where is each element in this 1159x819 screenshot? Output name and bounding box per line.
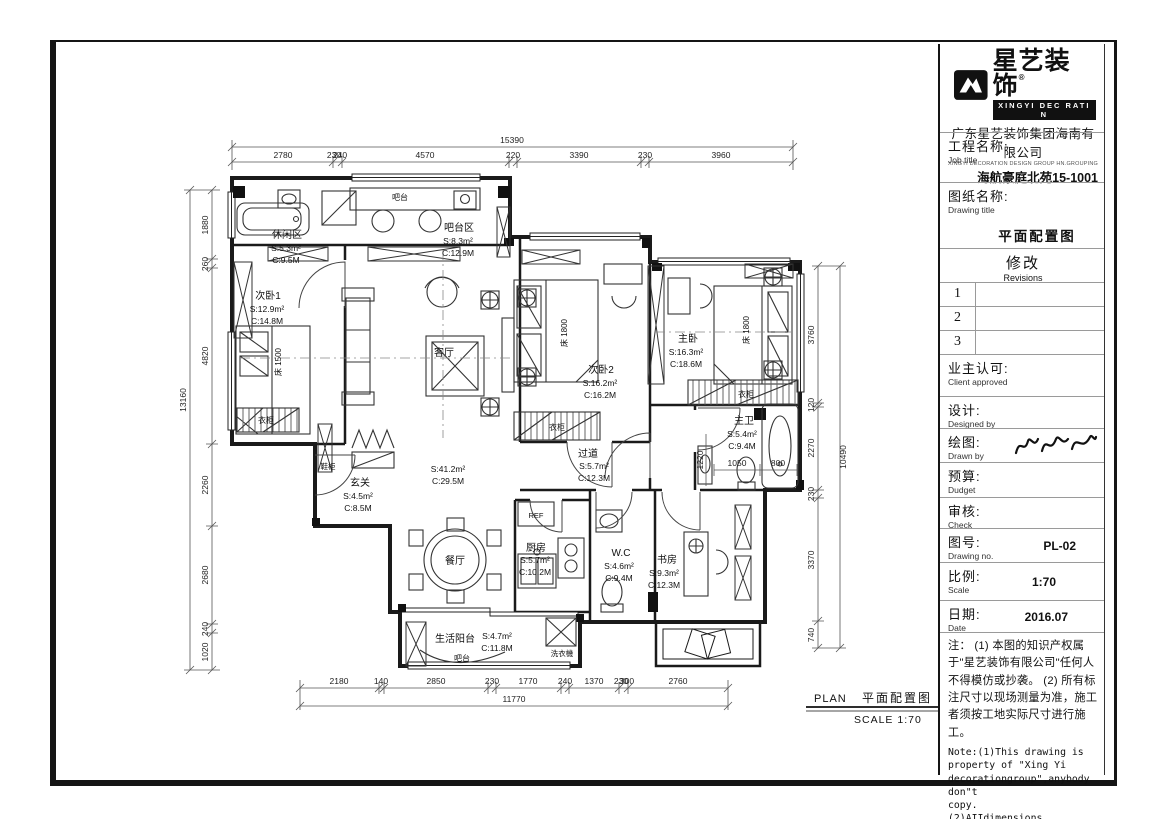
logo-subtitle: XINGYI DEC RATI N (993, 100, 1096, 120)
shoe-cabinet-label: 鞋柜 (321, 461, 336, 471)
notes-section: 注： (1) 本图的知识产权属于"星艺装饰有限公司"任何人不得模仿或抄袭。 (2… (940, 632, 1104, 773)
job-title-section: 工程名称: Job title 海航豪庭北苑15-1001 (940, 132, 1104, 182)
dim-bottom-3: 230 (485, 676, 499, 686)
room-balcony-perimeter: C:11.8M (481, 643, 513, 653)
drawing-sheet: { "title_block": { "brand": { "logo_text… (0, 0, 1159, 819)
room-study-perimeter: C:12.3M (648, 580, 680, 590)
washing-machine (546, 618, 576, 646)
dim-top-0: 2780 (274, 150, 293, 160)
bed2-size-label: 床 1800 (559, 318, 569, 347)
designed-label-cn: 设计: (948, 400, 1098, 419)
date-value: 2016.07 (1025, 610, 1068, 624)
dim-top-3: 220 (506, 150, 520, 160)
drawing-title-section: 图纸名称: Drawing title 平面配置图 (940, 182, 1104, 248)
wardrobe2-label: 衣柜 (549, 422, 565, 432)
room-kitchen-area: S:5.7m² (520, 555, 550, 565)
dim-bath-w2: 800 (771, 458, 785, 468)
desk-master (668, 278, 712, 314)
drawing-no-section: 图号: Drawing no. PL-02 (940, 528, 1104, 562)
drawing-label-cn: 图纸名称: (948, 186, 1098, 205)
budget-label-cn: 预算: (948, 466, 1098, 485)
dim-bottom-1: 140 (374, 676, 388, 686)
desk-bed2 (604, 264, 642, 308)
bay-window (656, 622, 760, 666)
wc-toilet (601, 578, 623, 612)
room-master-bath: 主卫 (734, 415, 754, 427)
bed1-size-label: 床 1500 (273, 347, 283, 376)
shower (322, 191, 356, 225)
room-leisure-area: S:5.3m² (271, 243, 301, 253)
scale-label-en: Scale (948, 585, 1098, 595)
room-living: 客厅 (434, 346, 454, 359)
dim-bath-w1: 1050 (728, 458, 747, 468)
dim-bottom-4: 1770 (519, 676, 538, 686)
bar-top-label: 吧台 (392, 192, 408, 202)
room-bar-zone-perimeter: C:12.9M (442, 248, 474, 258)
room-master-bath-area: S:5.4m² (727, 429, 757, 439)
scale-label-cn: 比例: (948, 566, 1098, 585)
room-bed1-area: S:12.9m² (250, 304, 285, 314)
room-dining: 餐厅 (445, 554, 465, 567)
entry-mat (352, 430, 394, 468)
fridge-label: REF (529, 511, 544, 520)
note-chinese: 注： (1) 本图的知识产权属于"星艺装饰有限公司"任何人不得模仿或抄袭。 (2… (948, 638, 1098, 742)
drawing-no-value: PL-02 (1043, 539, 1076, 553)
master-bathtub (762, 404, 798, 488)
room-bed2-perimeter: C:16.2M (584, 390, 616, 400)
plan-scale: SCALE 1:70 (854, 714, 922, 726)
dim-left-0: 1880 (200, 215, 210, 234)
room-corridor-perimeter: C:12.3M (578, 473, 610, 483)
dim-left-2: 4820 (200, 346, 210, 365)
job-label-cn: 工程名称: (948, 136, 1098, 155)
scale-section: 比例: Scale 1:70 (940, 562, 1104, 600)
room-balcony: 生活阳台 (435, 632, 475, 645)
dim-left-5: 240 (200, 622, 210, 636)
room-entry: 玄关 (350, 476, 370, 489)
revisions-header: 修改 Revisions (940, 248, 1104, 282)
dim-left-1: 260 (200, 257, 210, 271)
dim-top-6: 3960 (712, 150, 731, 160)
room-bar-zone-area: S:8.3m² (443, 236, 473, 246)
dim-right-5: 740 (806, 628, 816, 642)
dim-top-2: 4570 (416, 150, 435, 160)
dim-top-1: 240 (333, 150, 347, 160)
client-label-cn: 业主认可: (948, 358, 1098, 377)
plan-label: PLAN (814, 693, 847, 705)
bar-counter (350, 188, 480, 210)
dim-left-3: 2260 (200, 475, 210, 494)
armchair (425, 277, 459, 307)
dim-right-0: 3760 (806, 325, 816, 344)
room-corridor-area: S:5.7m² (579, 461, 609, 471)
sofa (342, 288, 374, 405)
revisions-label-cn: 修改 (948, 252, 1098, 273)
designed-by-section: 设计: Designed by (940, 396, 1104, 428)
plan-footer-title: PLAN 平面配置图 SCALE 1:70 (806, 691, 946, 726)
room-entry-perimeter: C:8.5M (344, 503, 371, 513)
check-label-cn: 审核: (948, 501, 1098, 520)
dim-top-5: 230 (638, 150, 652, 160)
room-leisure: 休闲区 (272, 228, 302, 241)
registered-mark: ® (1019, 73, 1026, 82)
room-bed1-perimeter: C:14.8M (251, 316, 283, 326)
room-bar-zone: 吧台区 (444, 221, 474, 234)
bar-stool (419, 210, 441, 232)
room-wc-area: S:4.6m² (604, 561, 634, 571)
revision-row: 3 (940, 330, 1104, 354)
check-section: 审核: Check (940, 497, 1104, 528)
dim-right-4: 3370 (806, 550, 816, 569)
wardrobe1-label: 衣柜 (258, 415, 274, 425)
dim-bottom-6: 1370 (585, 676, 604, 686)
dim-bottom-0: 2180 (330, 676, 349, 686)
dim-left-overall: 13160 (178, 388, 188, 412)
master-bed (714, 286, 792, 384)
room-study: 书房 (657, 553, 677, 566)
room-bed2: 次卧2 (588, 363, 614, 376)
room-master: 主卧 (678, 332, 698, 345)
room-wc: W.C (612, 548, 631, 559)
dim-top-overall: 15390 (500, 135, 524, 145)
drawing-no-label-en: Drawing no. (948, 551, 1098, 561)
revision-number: 1 (940, 283, 976, 306)
room-corridor: 过道 (578, 447, 598, 460)
dim-bath-height: 1220 (695, 450, 705, 469)
dim-right-1: 120 (806, 398, 816, 412)
dim-right-3: 230 (806, 487, 816, 501)
plan-title-cn: 平面配置图 (862, 691, 932, 705)
room-master-area: S:16.3m² (669, 347, 704, 357)
room-bed1: 次卧1 (255, 289, 281, 302)
note-english: Note:(1)This drawing is property of "Xin… (948, 746, 1098, 819)
logo-text: 星艺装饰® (993, 49, 1096, 99)
title-block: 星艺装饰® XINGYI DEC RATI N 广东星艺装饰集团海南有限公司 X… (938, 44, 1105, 775)
room-leisure-perimeter: C:9.5M (272, 255, 299, 265)
bar-bottom-label: 吧台 (454, 653, 470, 663)
drawing-title-value: 平面配置图 (976, 225, 1098, 245)
budget-section: 预算: Dudget (940, 462, 1104, 497)
room-kitchen-perimeter: C:10.2M (519, 567, 551, 577)
drawn-by-signature (1012, 431, 1098, 461)
client-approved-section: 业主认可: Client approved (940, 354, 1104, 396)
xingyi-logo-icon (954, 69, 988, 101)
coffee-table (426, 336, 484, 396)
stove (558, 538, 584, 578)
date-section: 日期: Date 2016.07 (940, 600, 1104, 632)
room-study-area: S:9.3m² (649, 568, 679, 578)
master-bed-size-label: 床 1800 (741, 315, 751, 344)
room-living-area: S:41.2m² (431, 464, 466, 474)
revision-number: 3 (940, 331, 976, 354)
room-master-perimeter: C:18.6M (670, 359, 702, 369)
washbasin (278, 190, 300, 208)
brand-section: 星艺装饰® XINGYI DEC RATI N 广东星艺装饰集团海南有限公司 X… (940, 44, 1104, 132)
room-living-perimeter: C:29.5M (432, 476, 464, 486)
dim-bottom-2: 2850 (427, 676, 446, 686)
dim-left-6: 1020 (200, 642, 210, 661)
date-label-cn: 日期: (948, 604, 1098, 623)
dim-right-overall: 10490 (838, 445, 848, 469)
revision-row: 1 (940, 282, 1104, 306)
washer-label: 洗衣機 (551, 648, 574, 658)
dim-top-4: 3390 (570, 150, 589, 160)
budget-label-en: Dudget (948, 485, 1098, 495)
scale-value: 1:70 (1032, 575, 1056, 589)
room-entry-area: S:4.5m² (343, 491, 373, 501)
study-desk (684, 532, 728, 596)
room-bed2-area: S:16.2m² (583, 378, 618, 388)
dim-bottom-5: 240 (558, 676, 572, 686)
dim-left-4: 2680 (200, 565, 210, 584)
room-master-bath-perimeter: C:9.4M (728, 441, 755, 451)
room-balcony-area: S:4.7m² (482, 631, 512, 641)
job-label-en: Job title (948, 155, 1098, 165)
room-wc-perimeter: C:9.4M (605, 573, 632, 583)
wardrobe3-label: 衣柜 (738, 389, 754, 399)
drawn-by-section: 绘图: Drawn by (940, 428, 1104, 462)
dim-bottom-8: 2760 (669, 676, 688, 686)
revision-number: 2 (940, 307, 976, 330)
bar-stool (372, 210, 394, 232)
dim-bottom-overlap: 300 (620, 676, 634, 686)
dim-right-2: 2270 (806, 438, 816, 457)
room-kitchen: 厨房 (526, 541, 546, 554)
revision-row: 2 (940, 306, 1104, 330)
dim-bottom-overall: 11770 (502, 694, 525, 704)
drawing-label-en: Drawing title (948, 205, 1098, 215)
tv-console (502, 318, 514, 392)
client-label-en: Client approved (948, 377, 1098, 387)
